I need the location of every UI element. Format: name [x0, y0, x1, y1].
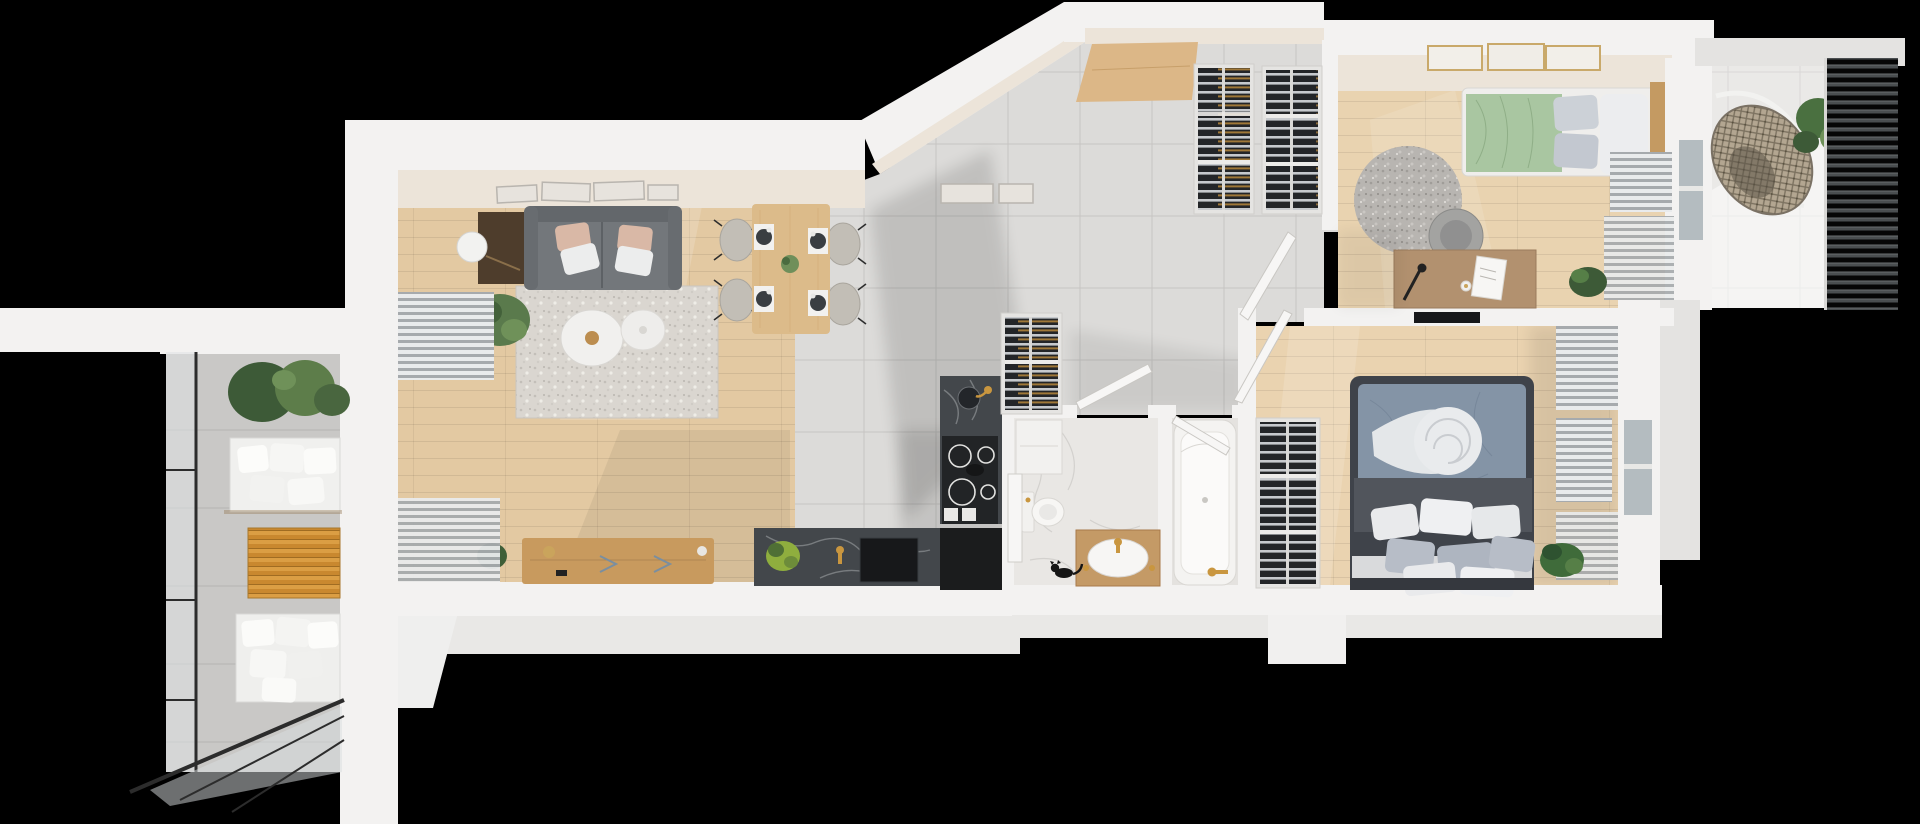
counter-module	[944, 508, 958, 521]
wall-tv	[1414, 312, 1480, 323]
entry-cabinet	[1076, 42, 1198, 102]
hall-wardrobe	[1001, 313, 1062, 414]
pillow	[1553, 133, 1599, 169]
office-window	[1679, 140, 1703, 240]
wood-vanity-with-basin	[1076, 530, 1160, 586]
wardrobe	[1256, 418, 1320, 588]
wardrobe-b	[1262, 66, 1322, 214]
black-island-unit	[940, 528, 1002, 590]
floor-plan	[0, 0, 1920, 824]
place-setting	[808, 290, 828, 316]
radiator	[1556, 418, 1612, 502]
dining-table	[752, 204, 830, 334]
counter-module	[962, 508, 976, 521]
pillow	[1553, 95, 1599, 132]
sofa	[524, 206, 682, 290]
headboard	[1350, 578, 1534, 590]
pan	[966, 464, 984, 476]
curtains	[1604, 216, 1674, 300]
floor-plan-stage	[0, 0, 1920, 824]
three-wall-frames	[1428, 44, 1600, 70]
radiator	[1610, 152, 1672, 212]
plant	[1569, 267, 1607, 297]
wall-frame	[999, 184, 1033, 203]
radiator	[398, 292, 494, 380]
place-setting	[754, 224, 774, 250]
bathtub-room	[1172, 416, 1236, 585]
counter-plant	[766, 541, 800, 571]
green-bedding	[1466, 94, 1562, 172]
counter-sink	[860, 538, 918, 582]
shelf-edge	[224, 510, 342, 514]
washer-cabinet	[1016, 420, 1062, 474]
slatted-wood-table	[248, 528, 340, 598]
exterior-wall-band	[0, 308, 165, 352]
bench-seating-cushions	[230, 438, 340, 512]
desk	[1394, 250, 1536, 308]
wardrobe-a	[1194, 64, 1254, 214]
low-marble-counter	[754, 528, 940, 586]
bathtub	[1174, 420, 1236, 585]
lounge-cushions	[236, 614, 340, 703]
window-blinds	[388, 498, 500, 582]
double-bed	[1350, 376, 1536, 598]
place-setting	[808, 228, 828, 254]
shower-screen	[1008, 474, 1022, 562]
radiator	[1556, 326, 1618, 410]
tv-sideboard	[522, 538, 714, 584]
drain	[1202, 497, 1208, 503]
shadow	[1338, 230, 1400, 308]
bedroom-window	[1624, 420, 1652, 515]
place-setting	[754, 286, 774, 312]
wall-frame	[941, 184, 993, 203]
plant	[1540, 543, 1584, 577]
louvered-screen	[1826, 58, 1898, 310]
